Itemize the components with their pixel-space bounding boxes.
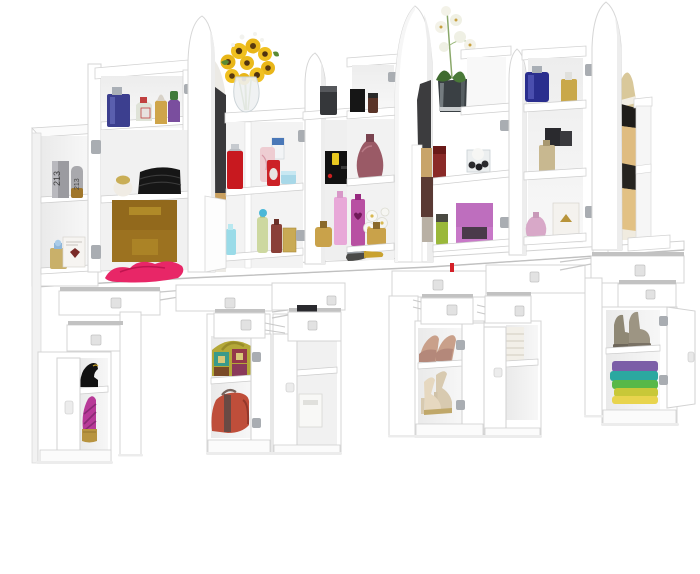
svg-text:213: 213 <box>74 178 81 190</box>
svg-text:213: 213 <box>52 171 62 186</box>
